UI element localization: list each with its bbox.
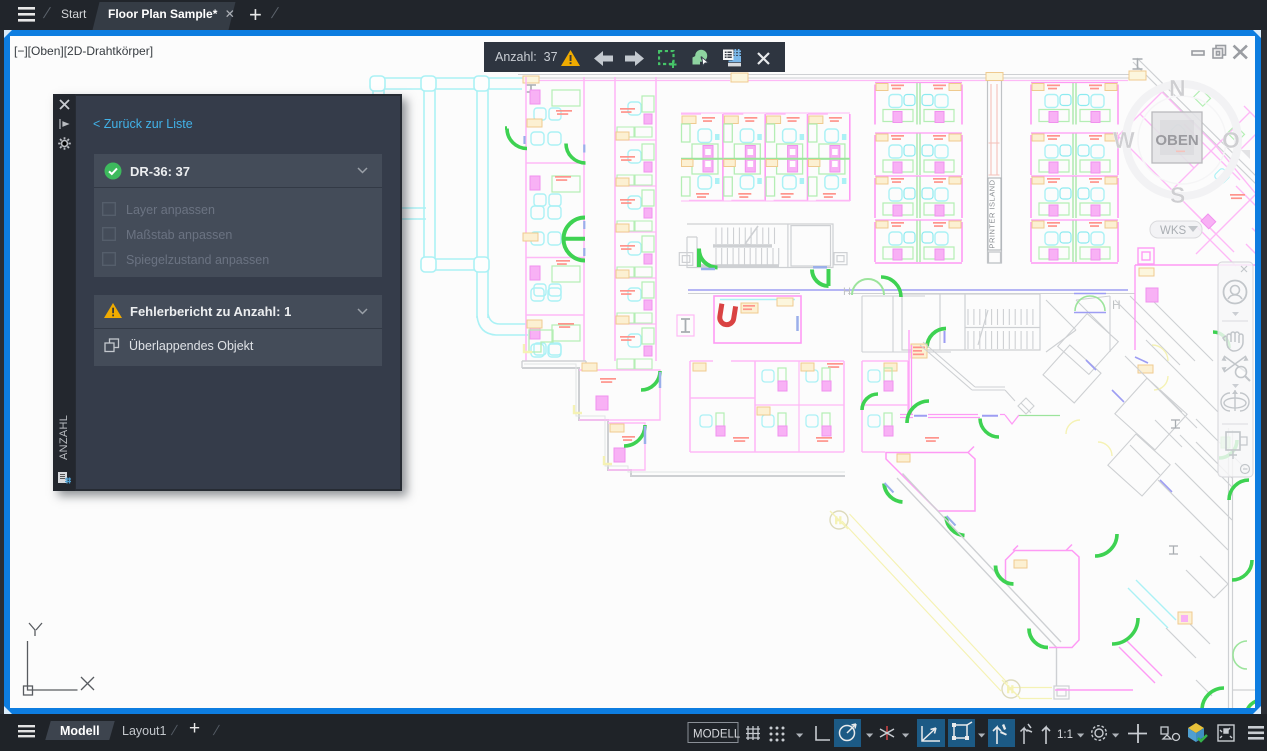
svg-text:1:1: 1:1	[1057, 729, 1073, 741]
svg-text:MODELL: MODELL	[693, 729, 741, 741]
